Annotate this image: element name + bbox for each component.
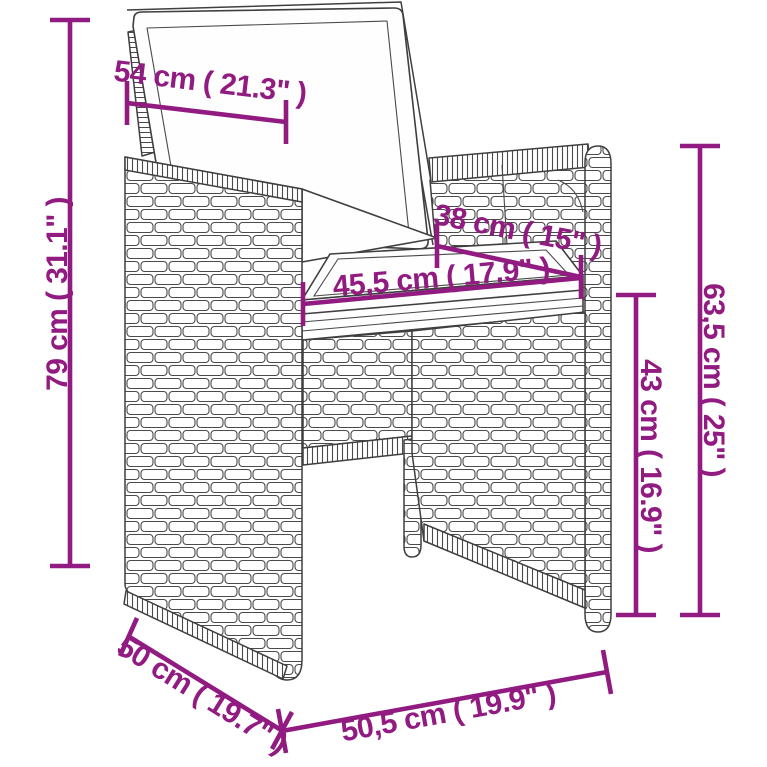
- under-seat-structure: [303, 312, 585, 608]
- chair-illustration: [124, 2, 611, 680]
- right-corner-post: [585, 146, 611, 632]
- dimension-backrest-height: 63,5 cm ( 25" ): [680, 146, 730, 615]
- seat-height-label: 43 cm ( 16.9" ): [634, 359, 667, 553]
- dimension-seat-height: 43 cm ( 16.9" ): [616, 295, 667, 615]
- total-height-label: 79 cm ( 31.1" ): [41, 197, 74, 391]
- front-apron: [303, 331, 412, 448]
- backrest-height-label: 63,5 cm ( 25" ): [697, 283, 730, 477]
- base-width-label: 50,5 cm ( 19.9" ): [338, 677, 558, 748]
- chair-diagram-svg: 54 cm ( 21.3" ) 79 cm ( 31.1" ) 38 cm ( …: [0, 0, 767, 767]
- dimension-base-width: 50,5 cm ( 19.9" ): [278, 650, 611, 753]
- dimension-total-height: 79 cm ( 31.1" ): [41, 20, 90, 566]
- dimension-diagram: 54 cm ( 21.3" ) 79 cm ( 31.1" ) 38 cm ( …: [0, 0, 767, 767]
- left-side-panel: [124, 157, 302, 680]
